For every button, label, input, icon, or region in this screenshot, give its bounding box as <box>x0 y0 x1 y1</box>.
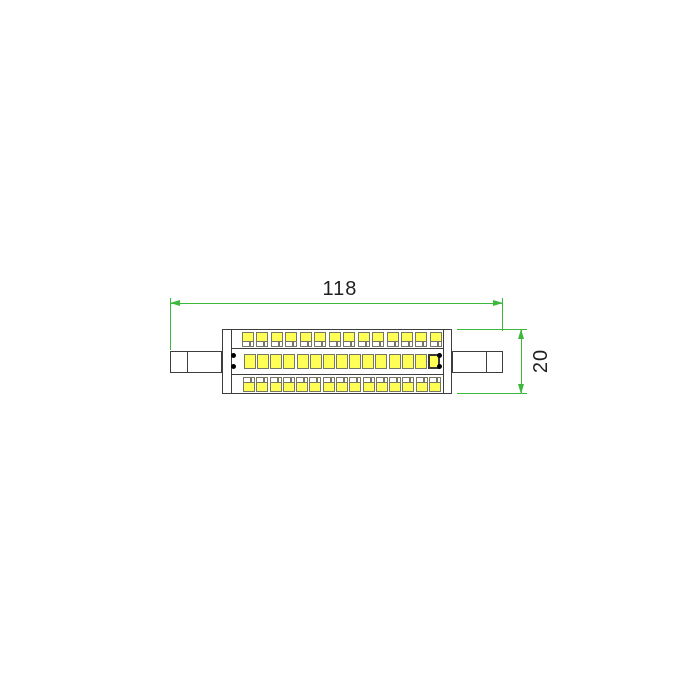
led-chip <box>270 354 282 369</box>
led-chip <box>416 377 428 392</box>
led-chip <box>256 377 268 392</box>
led-chip <box>402 354 414 369</box>
extension-line-bottom <box>457 393 527 394</box>
drawing-canvas: 118 20 <box>0 0 700 700</box>
led-chip <box>336 354 348 369</box>
pin-right-divider <box>486 351 487 373</box>
led-row-top <box>242 332 442 347</box>
led-chip <box>285 332 297 347</box>
led-chip <box>430 332 442 347</box>
dimension-length-line <box>170 303 503 304</box>
led-chip <box>271 332 283 347</box>
dimension-arrow-left-icon <box>170 300 180 306</box>
led-separator-bottom <box>231 374 444 375</box>
dimension-diameter-label: 20 <box>530 341 552 381</box>
led-chip <box>256 332 268 347</box>
led-chip <box>309 377 321 392</box>
led-chip <box>323 377 335 392</box>
led-chip <box>243 377 255 392</box>
led-chip <box>415 354 427 369</box>
led-chip <box>349 354 361 369</box>
led-chip <box>376 377 388 392</box>
led-chip <box>349 377 361 392</box>
led-chip <box>415 332 427 347</box>
led-chip <box>401 332 413 347</box>
led-chip <box>363 377 375 392</box>
led-chip <box>336 377 348 392</box>
led-chip <box>389 354 401 369</box>
led-chip <box>244 354 256 369</box>
led-chip <box>387 332 399 347</box>
led-chip <box>329 332 341 347</box>
led-separator-top <box>231 348 444 349</box>
led-chip <box>297 354 309 369</box>
led-row-middle <box>244 354 440 369</box>
led-row-bottom <box>243 377 441 392</box>
led-chip <box>283 354 295 369</box>
led-chip <box>389 377 401 392</box>
led-chip <box>372 332 384 347</box>
solder-dot <box>231 364 236 369</box>
solder-dot <box>437 353 442 358</box>
led-chip <box>358 332 370 347</box>
pin-right <box>452 351 503 373</box>
led-chip <box>362 354 374 369</box>
led-chip <box>296 377 308 392</box>
led-chip <box>270 377 282 392</box>
led-chip <box>300 332 312 347</box>
led-chip <box>343 332 355 347</box>
led-chip <box>257 354 269 369</box>
lamp-inner-wall-left <box>231 329 232 393</box>
led-chip <box>323 354 335 369</box>
led-chip <box>429 377 441 392</box>
lamp-inner-wall-right <box>443 329 444 393</box>
led-chip <box>242 332 254 347</box>
led-chip <box>314 332 326 347</box>
led-chip <box>310 354 322 369</box>
led-chip <box>283 377 295 392</box>
extension-line-left <box>170 298 171 350</box>
pin-left <box>170 351 222 373</box>
dimension-arrow-up-icon <box>518 329 524 339</box>
solder-dot <box>437 364 442 369</box>
solder-dot <box>231 353 236 358</box>
led-chip <box>375 354 387 369</box>
pin-left-divider <box>187 351 188 373</box>
dimension-length-label: 118 <box>290 278 390 300</box>
led-chip <box>402 377 414 392</box>
extension-line-right <box>502 298 503 331</box>
extension-line-top <box>457 329 527 330</box>
